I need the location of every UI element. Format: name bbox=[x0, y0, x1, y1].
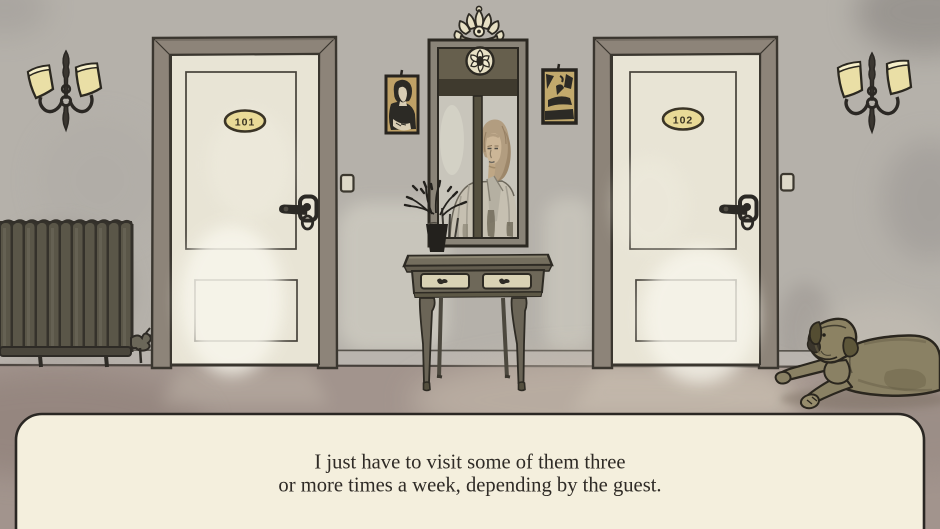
svg-text:I just have to visit some of t: I just have to visit some of them three bbox=[314, 452, 625, 474]
svg-text:101: 101 bbox=[235, 117, 256, 129]
svg-text:or more times a week, dependin: or more times a week, depending by the g… bbox=[278, 475, 661, 497]
svg-text:102: 102 bbox=[673, 115, 694, 127]
